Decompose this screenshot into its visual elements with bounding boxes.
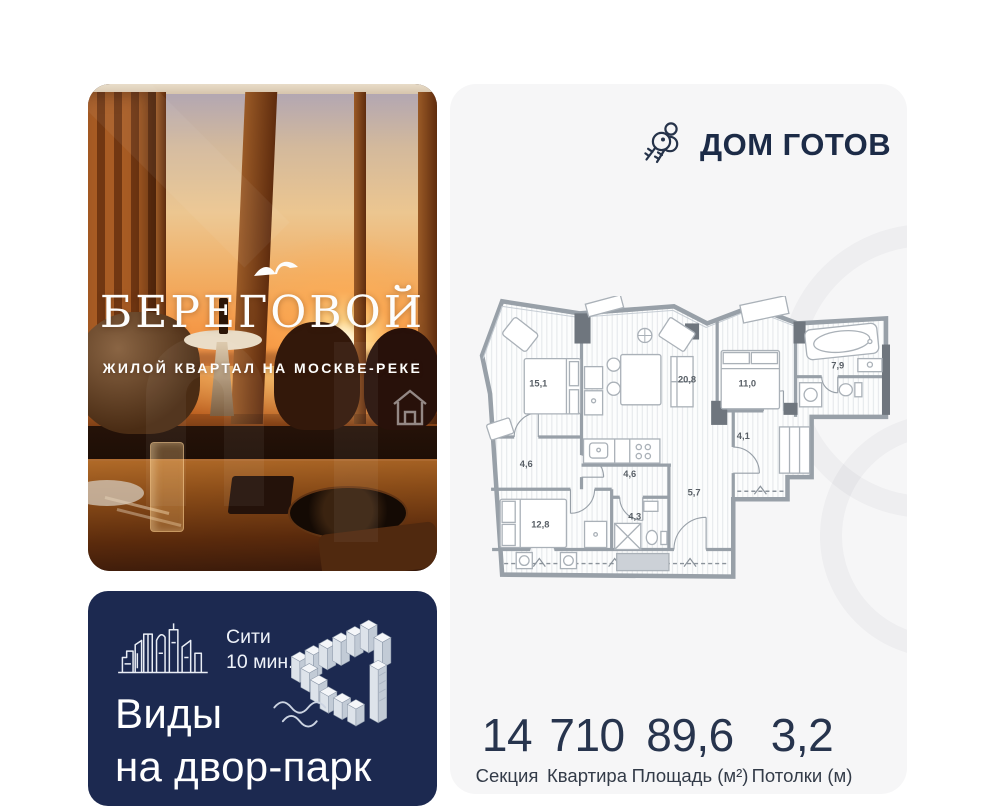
city-skyline-icon	[116, 621, 212, 677]
brand-title: БЕРЕГОВОЙ	[88, 287, 437, 338]
promo-collage: БЕРЕГОВОЙ ЖИЛОЙ КВАРТАЛ НА МОСКВЕ-РЕКЕ С…	[0, 0, 994, 810]
stat-value: 3,2	[752, 710, 853, 760]
room-area: 15,1	[529, 379, 547, 389]
stat-label: Квартира	[547, 765, 627, 787]
brand-subtitle: ЖИЛОЙ КВАРТАЛ НА МОСКВЕ-РЕКЕ	[88, 360, 437, 376]
room-area: 12,8	[531, 519, 549, 529]
stat-value: 14	[476, 710, 539, 760]
floor-plan: 15,1 20,8 11,0 7,9 4,1 4,6 4,6 4,3 5,7 1…	[474, 296, 890, 588]
room-area: 7,9	[831, 361, 844, 371]
keys-icon	[640, 120, 686, 170]
stat-label: Секция	[476, 765, 539, 787]
photo-card: БЕРЕГОВОЙ ЖИЛОЙ КВАРТАЛ НА МОСКВЕ-РЕКЕ	[88, 84, 437, 571]
card-headline: Виды на двор-парк	[115, 687, 372, 793]
room-area: 4,3	[628, 511, 641, 521]
stat-apartment: 710 Квартира	[547, 710, 627, 787]
room-area: 4,6	[520, 459, 533, 469]
headline-line2: на двор-парк	[115, 740, 372, 793]
stat-ceiling: 3,2 Потолки (м)	[752, 710, 853, 787]
stat-value: 89,6	[632, 710, 749, 760]
house-watermark-icon	[388, 384, 432, 430]
room-area: 4,6	[623, 469, 636, 479]
plan-card: ДОМ ГОТОВ	[450, 84, 907, 794]
room-area: 20,8	[678, 375, 696, 385]
stat-area: 89,6 Площадь (м²)	[632, 710, 749, 787]
status-row: ДОМ ГОТОВ	[640, 120, 891, 170]
stat-section: 14 Секция	[476, 710, 539, 787]
seagull-icon	[250, 256, 302, 282]
room-area: 5,7	[688, 487, 701, 497]
stat-value: 710	[547, 710, 627, 760]
headline-line1: Виды	[115, 687, 372, 740]
feature-card: Сити 10 мин.	[88, 591, 437, 806]
stat-label: Потолки (м)	[752, 765, 853, 787]
room-area: 11,0	[738, 379, 756, 389]
room-area: 4,1	[737, 431, 750, 441]
status-label: ДОМ ГОТОВ	[700, 127, 891, 163]
stat-label: Площадь (м²)	[632, 765, 749, 787]
brand-block: БЕРЕГОВОЙ ЖИЛОЙ КВАРТАЛ НА МОСКВЕ-РЕКЕ	[88, 256, 437, 376]
